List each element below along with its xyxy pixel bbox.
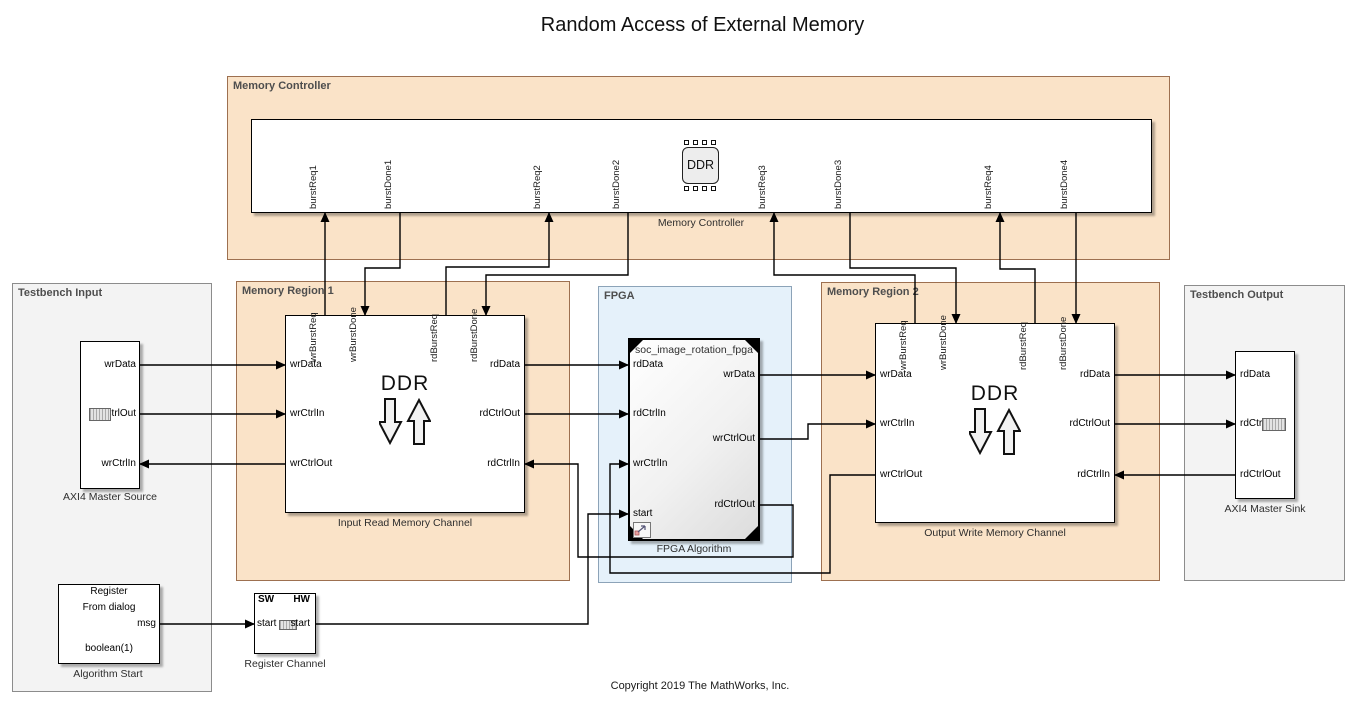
channel2-port-wrburstdone: wrBurstDone <box>938 315 949 370</box>
channel1-port-rdburstreq: rdBurstReq <box>429 314 440 362</box>
channel2-ddr-label: DDR <box>945 382 1045 406</box>
port-label-burstdone4: burstDone4 <box>1059 160 1070 209</box>
chip-pin-icon <box>702 140 707 145</box>
ddr-updown-arrows-icon <box>969 408 1021 456</box>
channel2-port-wrburstreq: wrBurstReq <box>898 320 909 370</box>
ddr-chip-icon: DDR <box>682 147 719 184</box>
wire-burstdone2[interactable] <box>486 213 628 315</box>
wire-fpga-wrctrlout[interactable] <box>760 424 875 439</box>
algorithm-start-port-msg: msg <box>137 618 156 630</box>
algorithm-start-name: Algorithm Start <box>28 668 188 680</box>
chip-pin-icon <box>711 186 716 191</box>
fpga-algorithm-name: FPGA Algorithm <box>614 543 774 555</box>
register-channel-hw-label: HW <box>293 594 310 606</box>
algorithm-start-line2: From dialog <box>58 602 160 614</box>
algorithm-start-value: boolean(1) <box>58 643 160 655</box>
channel1-port-rddata: rdData <box>490 359 520 371</box>
port-label-burstreq4: burstReq4 <box>983 165 994 209</box>
register-channel-port-start-out: start <box>291 618 310 630</box>
ddr-updown-arrows-icon <box>379 398 431 446</box>
register-channel-port-start-in: start <box>257 618 276 630</box>
channel2-port-rddata: rdData <box>1080 369 1110 381</box>
fpga-port-rdctrlin: rdCtrlIn <box>633 408 666 420</box>
input-read-memory-channel-name: Input Read Memory Channel <box>305 517 505 529</box>
channel1-port-wrctrlin: wrCtrlIn <box>290 408 324 420</box>
channel2-port-wrctrlout: wrCtrlOut <box>880 469 922 481</box>
wire-burstreq2[interactable] <box>446 213 549 315</box>
simulink-diagram-canvas: Random Access of External Memory Memory … <box>0 0 1355 707</box>
fpga-port-wrdata: wrData <box>723 369 755 381</box>
memory-controller-block-name: Memory Controller <box>621 217 781 229</box>
channel1-ddr-label: DDR <box>355 372 455 396</box>
axi4-master-source-name: AXI4 Master Source <box>30 491 190 503</box>
source-port-wrctrlin: wrCtrlIn <box>102 458 136 470</box>
register-channel-name: Register Channel <box>205 658 365 670</box>
channel2-port-rdctrlin: rdCtrlIn <box>1077 469 1110 481</box>
register-channel-sw-label: SW <box>258 594 274 606</box>
model-reference-badge-icon <box>633 522 651 538</box>
channel2-port-wrctrlin: wrCtrlIn <box>880 418 914 430</box>
fpga-model-title: soc_image_rotation_fpga <box>628 344 760 356</box>
port-label-burstdone2: burstDone2 <box>611 160 622 209</box>
wire-burstdone1[interactable] <box>365 213 400 315</box>
wire-register-channel-start[interactable] <box>316 514 628 624</box>
channel1-port-rdctrlout: rdCtrlOut <box>479 408 520 420</box>
port-label-burstreq1: burstReq1 <box>308 165 319 209</box>
channel2-port-rdctrlout: rdCtrlOut <box>1069 418 1110 430</box>
wire-burstdone3[interactable] <box>850 213 956 323</box>
signal-log-badge-icon <box>1262 418 1286 431</box>
algorithm-start-line1: Register <box>58 586 160 598</box>
fpga-port-rdctrlout: rdCtrlOut <box>714 499 755 511</box>
sink-port-rddata: rdData <box>1240 369 1270 381</box>
fpga-port-rddata: rdData <box>633 359 663 371</box>
axi4-master-sink-name: AXI4 Master Sink <box>1185 503 1345 515</box>
channel1-port-wrdata: wrData <box>290 359 322 371</box>
wire-burstreq4[interactable] <box>1000 213 1035 323</box>
port-label-burstdone1: burstDone1 <box>383 160 394 209</box>
output-write-memory-channel-name: Output Write Memory Channel <box>895 527 1095 539</box>
fpga-port-wrctrlin: wrCtrlIn <box>633 458 667 470</box>
port-label-burstreq2: burstReq2 <box>532 165 543 209</box>
channel2-port-rdburstreq: rdBurstReq <box>1018 322 1029 370</box>
port-label-burstreq3: burstReq3 <box>757 165 768 209</box>
channel1-port-rdctrlin: rdCtrlIn <box>487 458 520 470</box>
sink-port-rdctrlout: rdCtrlOut <box>1240 469 1281 481</box>
channel1-port-wrctrlout: wrCtrlOut <box>290 458 332 470</box>
port-label-burstdone3: burstDone3 <box>833 160 844 209</box>
fpga-port-start: start <box>633 508 652 520</box>
signal-log-badge-icon <box>89 408 111 421</box>
chip-pin-icon <box>684 140 689 145</box>
chip-pin-icon <box>702 186 707 191</box>
chip-pin-icon <box>693 140 698 145</box>
channel2-port-rdburstdone: rdBurstDone <box>1058 317 1069 370</box>
copyright-text: Copyright 2019 The MathWorks, Inc. <box>45 680 1355 692</box>
source-port-wrdata: wrData <box>104 359 136 371</box>
chip-pin-icon <box>711 140 716 145</box>
channel1-port-wrburstdone: wrBurstDone <box>348 307 359 362</box>
channel2-port-wrdata: wrData <box>880 369 912 381</box>
model-corner-icon <box>745 526 758 539</box>
chip-pin-icon <box>693 186 698 191</box>
channel1-port-rdburstdone: rdBurstDone <box>469 309 480 362</box>
chip-pin-icon <box>684 186 689 191</box>
fpga-port-wrctrlout: wrCtrlOut <box>713 433 755 445</box>
channel1-port-wrburstreq: wrBurstReq <box>308 312 319 362</box>
